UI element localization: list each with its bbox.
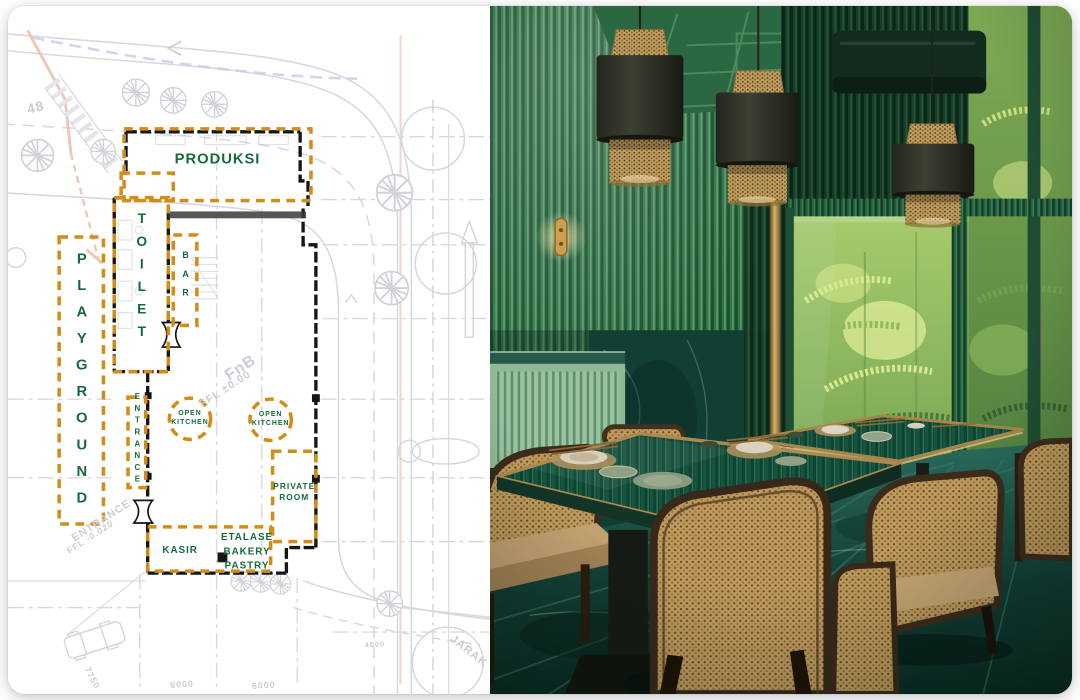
- label-etalase: ETALASE BAKERY PASTRY: [221, 531, 273, 574]
- door-swing-icon: [134, 500, 153, 523]
- label-playground: PLAYGROUND: [74, 251, 89, 516]
- restaurant-photo: [490, 6, 1072, 694]
- project-card[interactable]: PRODUKSI TOILET BAR PLAYGROUND ENTRANCE …: [8, 6, 1072, 694]
- label-dim-6000-a: 6000: [170, 679, 194, 692]
- label-entrance: ENTRANCE: [133, 392, 141, 486]
- label-produksi: PRODUKSI: [175, 150, 261, 169]
- label-open-kitchen-1: OPEN KITCHEN: [171, 410, 209, 427]
- zone-overlays: [59, 129, 316, 571]
- interior-photo-panel: [490, 6, 1072, 694]
- door-swing-icon: [162, 322, 180, 347]
- label-private-room: PRIVATE ROOM: [273, 481, 315, 502]
- label-dim-6000-b: 6000: [252, 680, 276, 693]
- label-bar: BAR: [181, 250, 190, 306]
- label-toilet: TOILET: [135, 210, 149, 346]
- car-symbol: [62, 618, 127, 662]
- label-dim-4000: 4000: [364, 639, 385, 650]
- hatched-wall: [168, 211, 306, 218]
- label-kasir: KASIR: [162, 544, 198, 557]
- floor-plan-panel: PRODUKSI TOILET BAR PLAYGROUND ENTRANCE …: [8, 6, 490, 694]
- photo-vignette: [490, 6, 1072, 694]
- label-open-kitchen-2: OPEN KITCHEN: [252, 411, 290, 428]
